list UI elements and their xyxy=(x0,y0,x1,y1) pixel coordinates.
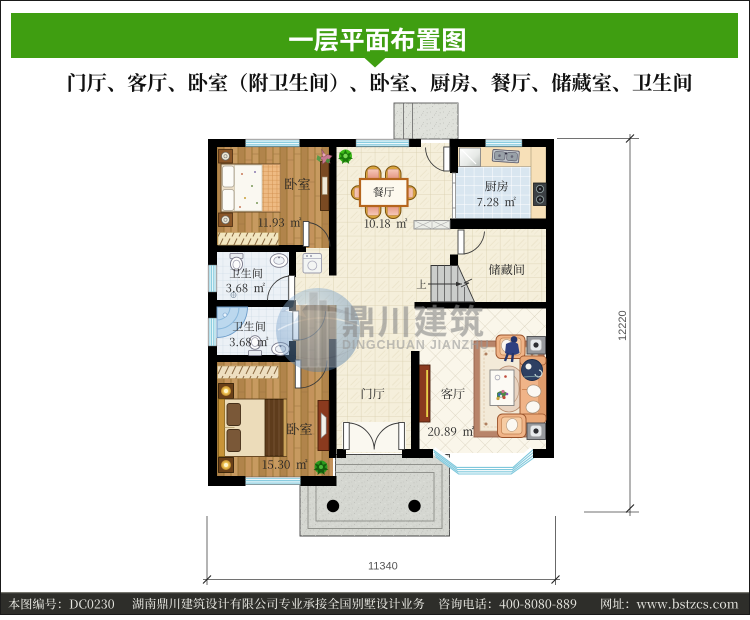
svg-text:12220: 12220 xyxy=(617,310,629,341)
svg-text:DINGCHUAN JIANZHU: DINGCHUAN JIANZHU xyxy=(342,338,490,352)
svg-text:11340: 11340 xyxy=(368,561,398,573)
